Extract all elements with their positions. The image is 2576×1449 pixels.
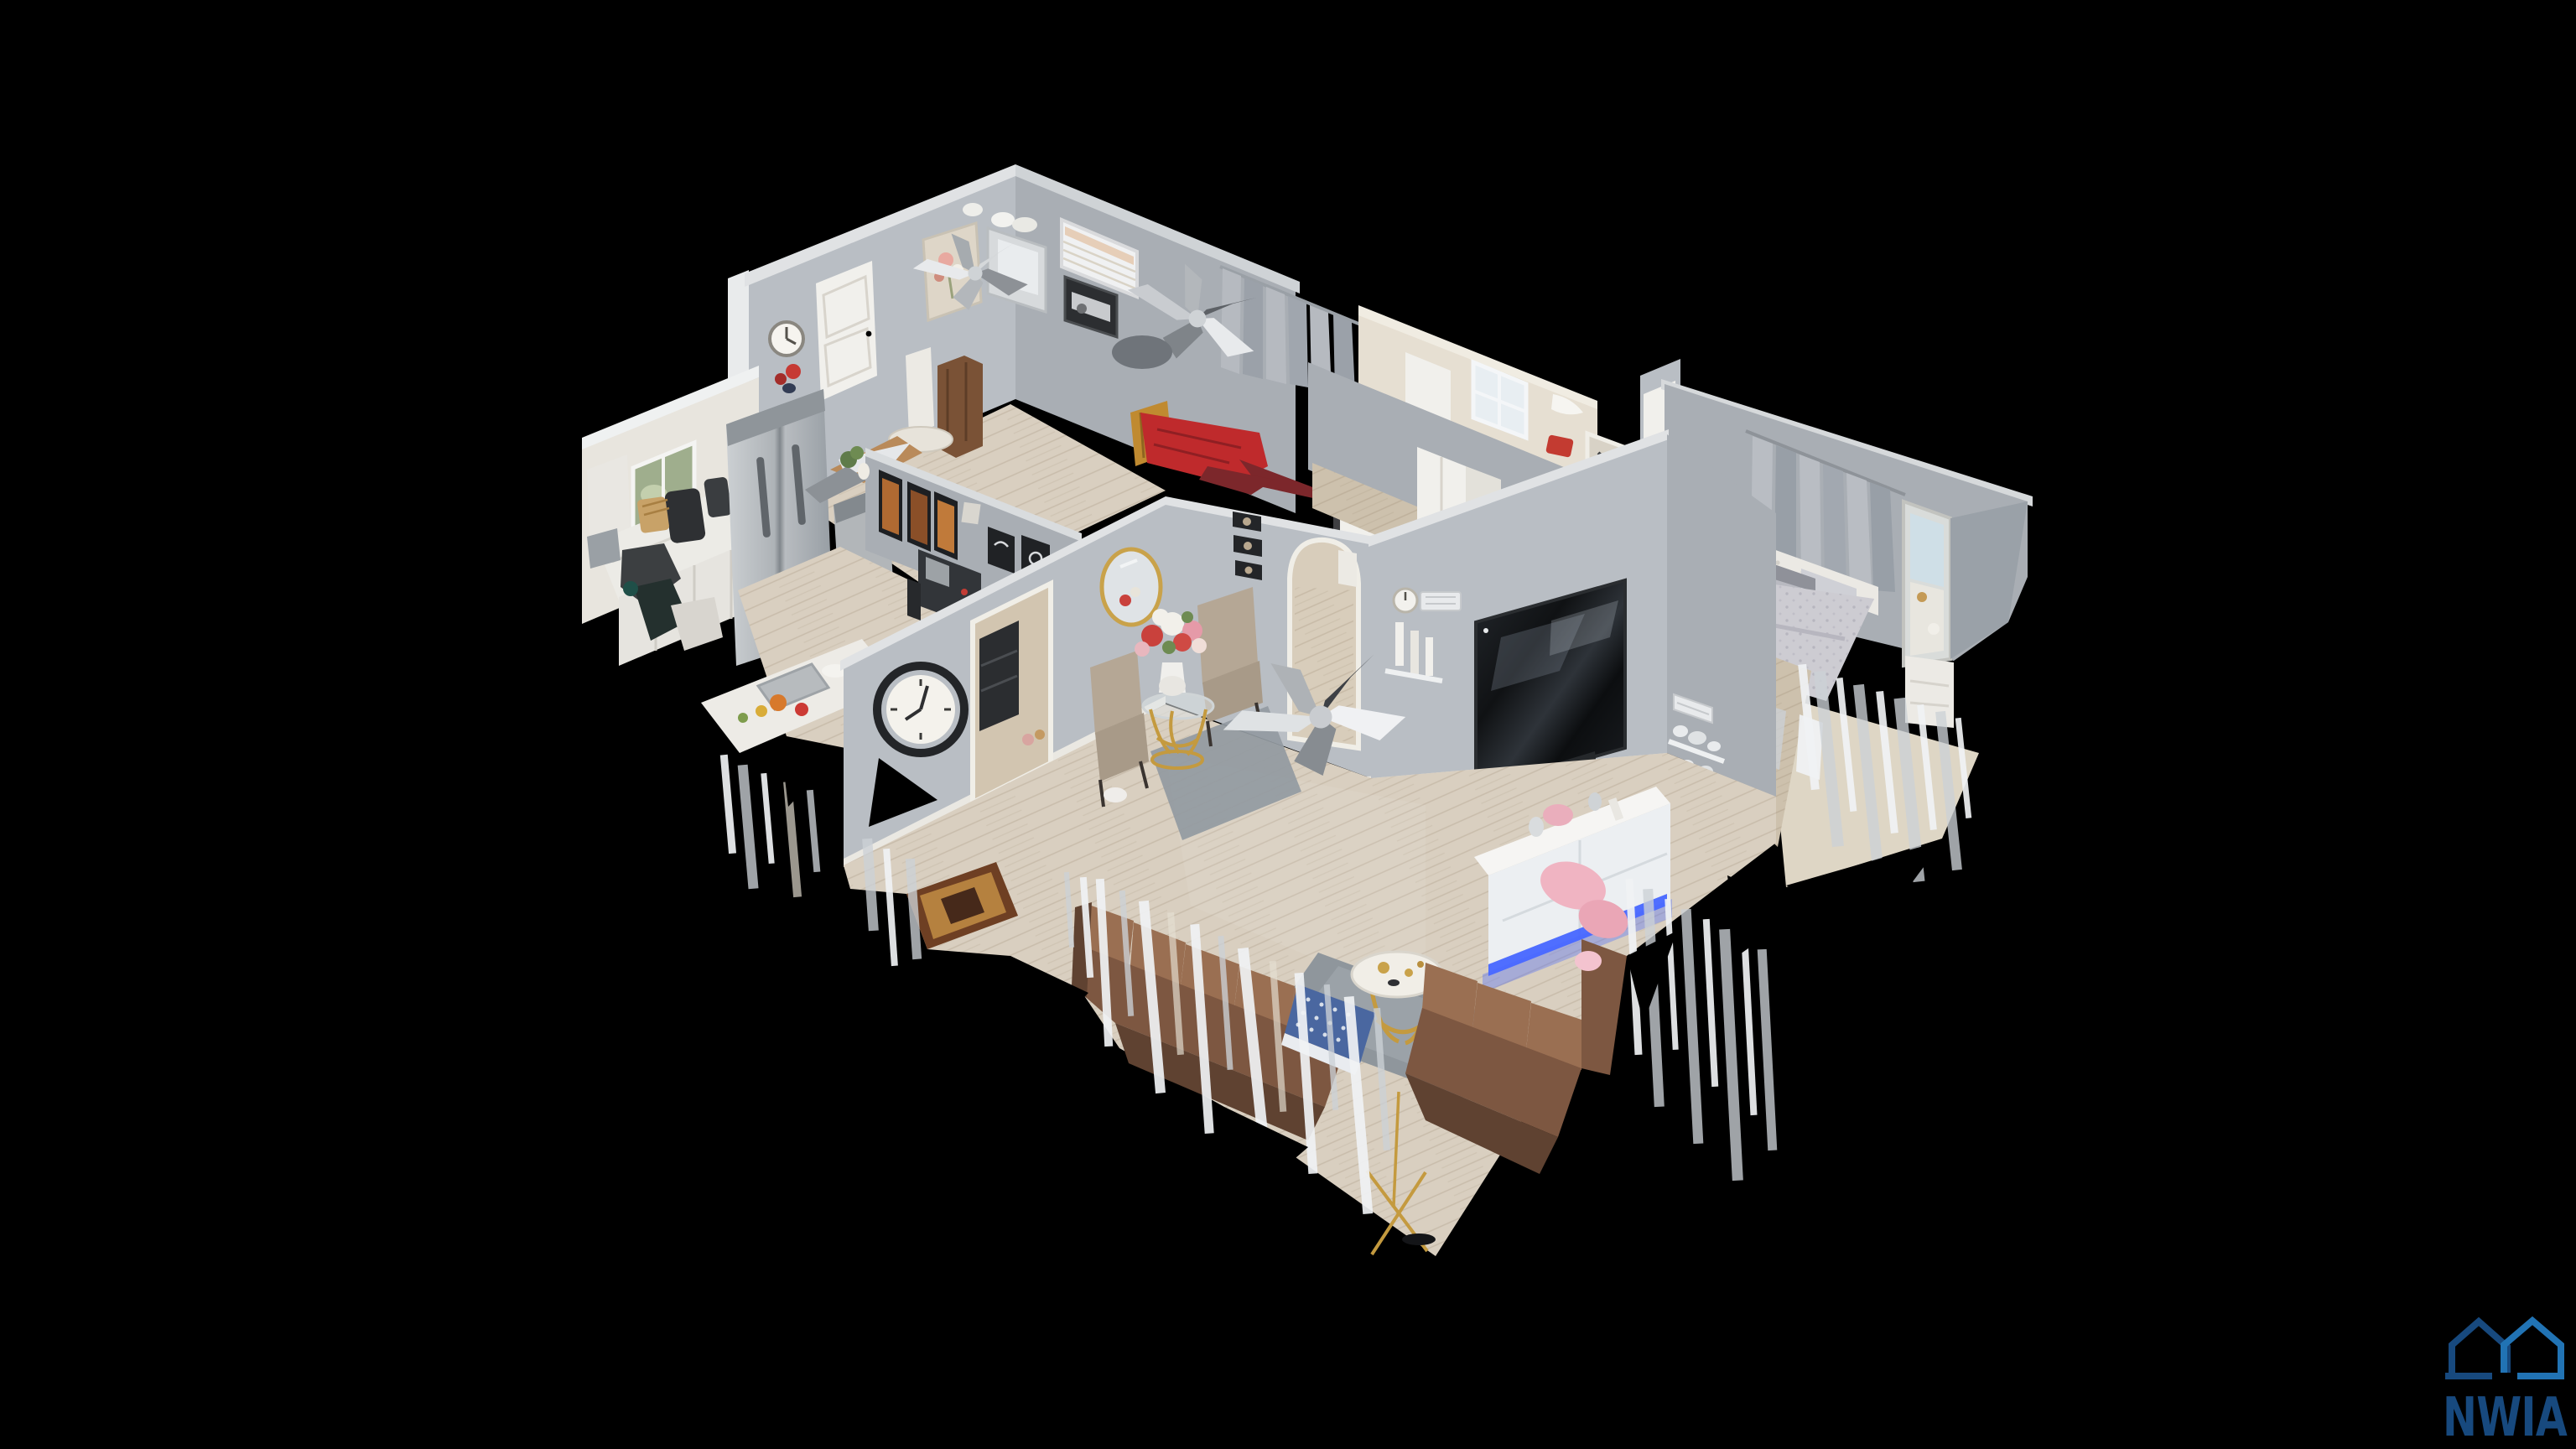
decorative-wall-clock	[877, 666, 964, 753]
cat-frames	[1233, 512, 1262, 580]
dollhouse-3d-viewport[interactable]: NWIA	[0, 0, 2576, 1449]
brand-wordmark: NWIA	[2443, 1387, 2568, 1449]
wall-clock-small	[770, 322, 803, 356]
dresser	[1905, 656, 1954, 728]
dollhouse-scene: NWIA	[0, 0, 2576, 1449]
scan-blob	[1112, 335, 1172, 369]
coffee-maker	[664, 487, 706, 543]
oval-mirror	[1102, 549, 1161, 625]
closet-mirror	[1903, 501, 1950, 666]
